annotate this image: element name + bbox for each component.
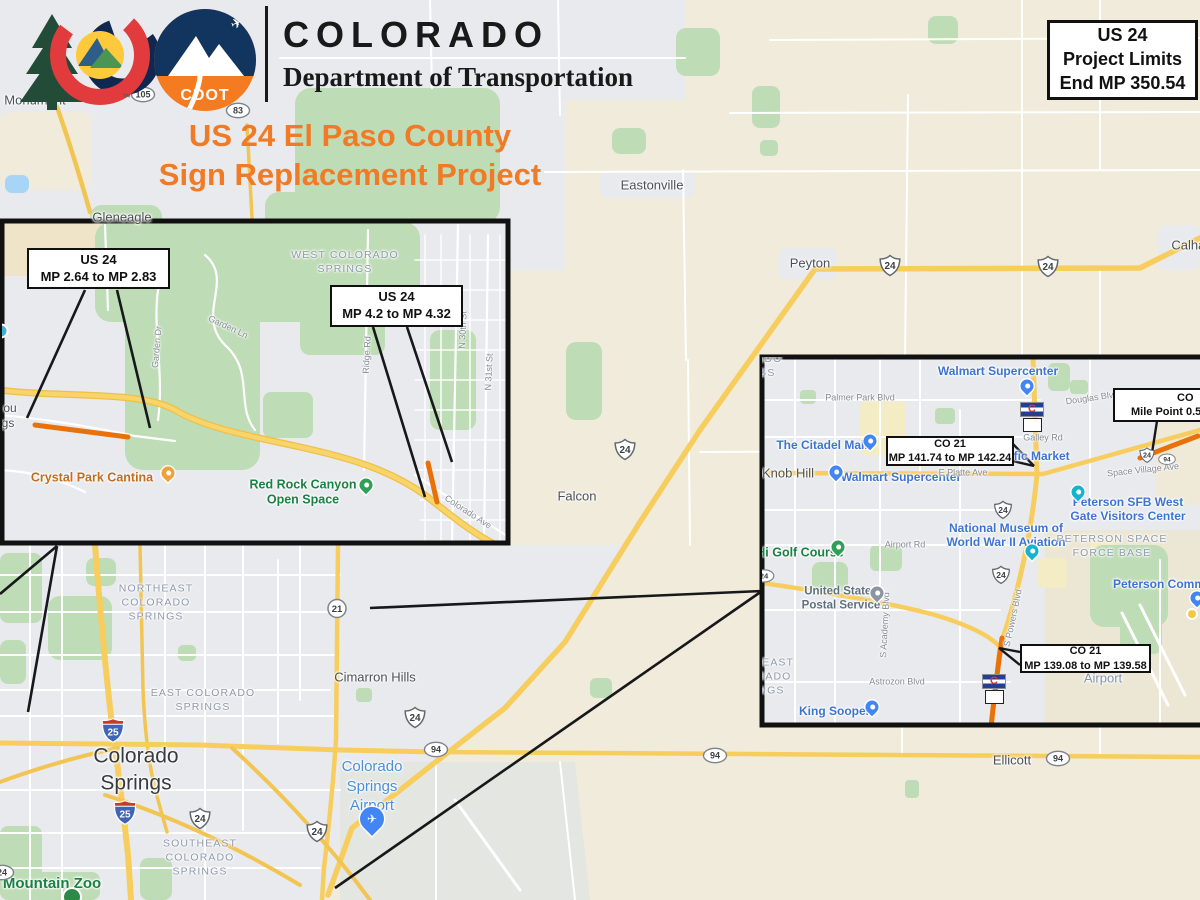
limits-line3: End MP 350.54 — [1050, 72, 1195, 96]
project-limits-box: US 24 Project Limits End MP 350.54 — [1047, 20, 1198, 100]
project-map-page: MonumentGleneagleEastonvillePeytonCalhan… — [0, 0, 1200, 900]
right-inset-map — [762, 357, 1200, 727]
lake — [5, 175, 29, 193]
limits-line2: Project Limits — [1050, 48, 1195, 72]
limits-line1: US 24 — [1050, 24, 1195, 48]
map-canvas — [0, 0, 1200, 900]
left-inset-map — [0, 218, 510, 547]
